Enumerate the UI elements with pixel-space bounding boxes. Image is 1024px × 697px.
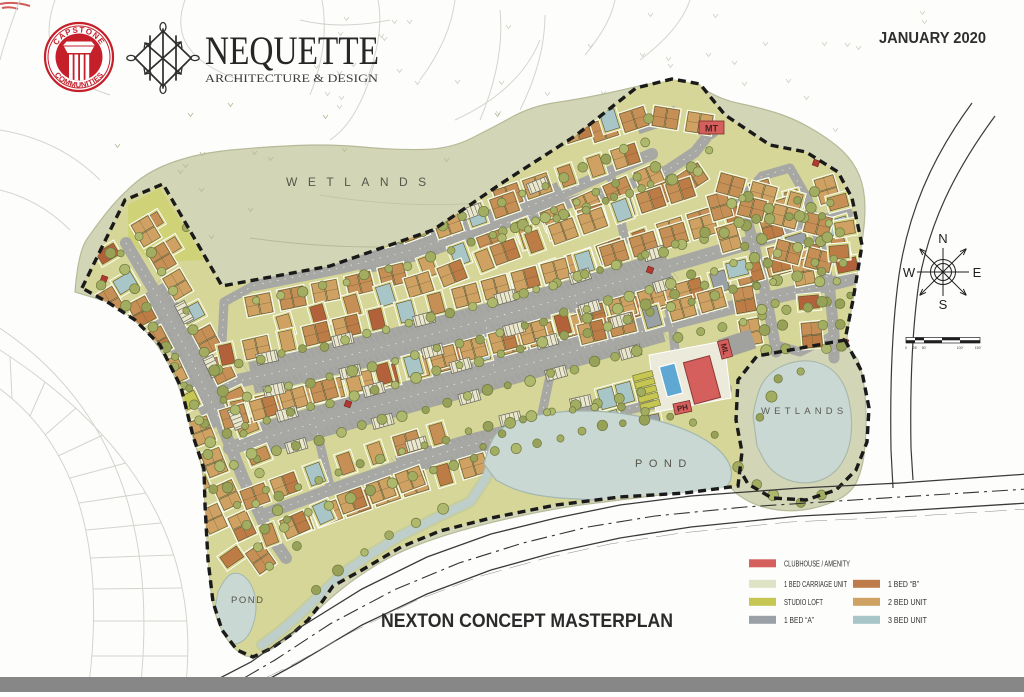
svg-text:POND: POND	[231, 595, 264, 606]
svg-text:POND: POND	[635, 458, 693, 470]
svg-text:S: S	[939, 297, 948, 312]
svg-text:MT: MT	[705, 124, 718, 134]
svg-text:2 BED UNIT: 2 BED UNIT	[888, 598, 927, 607]
svg-text:100': 100'	[957, 346, 964, 350]
svg-text:1 BED CARRIAGE UNIT: 1 BED CARRIAGE UNIT	[784, 580, 847, 589]
svg-text:ARCHITECTURE & DESIGN: ARCHITECTURE & DESIGN	[205, 73, 379, 85]
svg-text:NEXTON CONCEPT MASTERPLAN: NEXTON CONCEPT MASTERPLAN	[381, 610, 673, 632]
svg-text:STUDIO LOFT: STUDIO LOFT	[784, 598, 823, 607]
svg-text:50': 50'	[922, 346, 927, 350]
svg-text:1 BED “B”: 1 BED “B”	[888, 580, 919, 589]
svg-text:CLUBHOUSE / AMENITY: CLUBHOUSE / AMENITY	[784, 559, 850, 568]
svg-text:25': 25'	[913, 346, 918, 350]
svg-text:3 BED UNIT: 3 BED UNIT	[888, 616, 927, 625]
svg-text:JANUARY 2020: JANUARY 2020	[879, 30, 986, 47]
svg-text:WETLANDS: WETLANDS	[761, 406, 847, 417]
svg-text:1 BED “A”: 1 BED “A”	[784, 616, 814, 625]
svg-text:E: E	[973, 265, 982, 280]
svg-text:W: W	[903, 265, 916, 280]
svg-text:NEQUETTE: NEQUETTE	[205, 28, 379, 73]
svg-text:0: 0	[905, 346, 907, 350]
svg-text:N: N	[938, 231, 947, 246]
svg-text:WETLANDS: WETLANDS	[286, 175, 437, 189]
svg-text:150': 150'	[975, 346, 982, 350]
